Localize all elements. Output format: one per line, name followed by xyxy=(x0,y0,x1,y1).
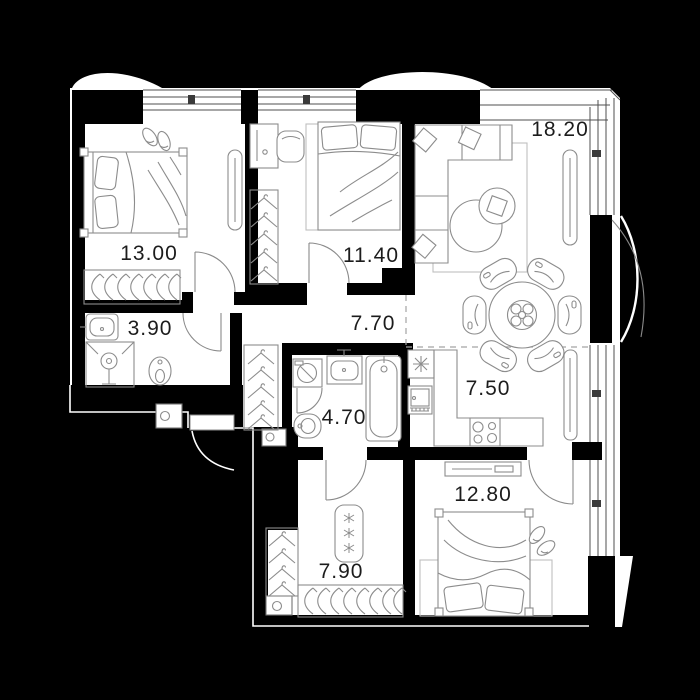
floor-plan-canvas: 18.20 13.00 11.40 3.90 7.70 4.70 7.50 12… xyxy=(0,0,700,700)
shaft-icon xyxy=(262,429,286,446)
bathtub-icon xyxy=(366,356,401,441)
floor-plan: 18.20 13.00 11.40 3.90 7.70 4.70 7.50 12… xyxy=(0,0,700,700)
toilet-icon xyxy=(149,357,171,385)
window-chip xyxy=(303,95,310,104)
area-label-bedroom-2: 11.40 xyxy=(343,244,399,267)
area-label-bedroom-3: 12.80 xyxy=(454,483,512,506)
radiator-icon xyxy=(563,150,577,245)
fridge-icon xyxy=(408,386,432,414)
sink-icon xyxy=(80,314,118,340)
single-bed-icon xyxy=(318,122,400,230)
double-bed-icon xyxy=(435,509,533,616)
shaft-icon xyxy=(266,596,292,615)
area-label-bathroom-2: 4.70 xyxy=(322,406,367,429)
toilet-icon xyxy=(294,414,321,438)
window-chip xyxy=(592,390,601,397)
shaft-icon xyxy=(156,404,182,428)
mirror-icon xyxy=(228,150,242,230)
washing-machine-icon xyxy=(293,359,322,387)
drying-rack-icon xyxy=(335,505,363,562)
window-chip xyxy=(592,500,601,507)
dresser-icon xyxy=(445,462,521,476)
double-bed-icon xyxy=(80,148,187,237)
balcony-door-leaf xyxy=(590,215,612,343)
area-label-kitchen: 7.50 xyxy=(466,377,511,400)
area-label-hallway: 7.70 xyxy=(351,312,396,335)
radiator-icon xyxy=(564,350,577,440)
area-label-wardrobe-room: 7.90 xyxy=(319,560,364,583)
area-label-bedroom-1: 13.00 xyxy=(120,242,178,265)
desk-chair-icon xyxy=(277,131,304,162)
window-chip xyxy=(592,150,601,157)
area-label-bathroom-1: 3.90 xyxy=(128,317,173,340)
vent-box-icon xyxy=(408,350,434,378)
area-label-living-room: 18.20 xyxy=(531,118,589,141)
desk-icon xyxy=(250,124,278,168)
window-chip xyxy=(188,95,195,104)
stove-icon xyxy=(470,418,500,446)
